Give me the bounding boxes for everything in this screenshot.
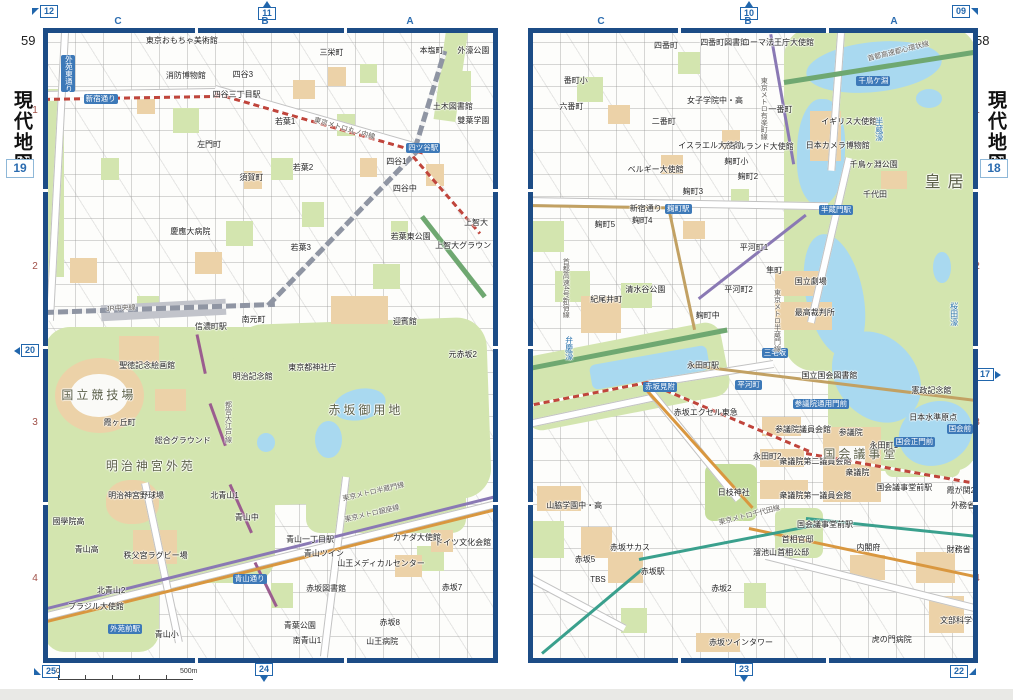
map-label: 赤坂駅 — [641, 568, 665, 577]
nav-marker-09[interactable]: 09 — [952, 5, 978, 18]
map-label: 慶應大病院 — [170, 228, 210, 237]
map-label: 本塩町 — [420, 47, 444, 56]
grid-column-label: B — [255, 16, 275, 27]
map-label: 青山通り — [233, 574, 267, 584]
map-label: 東京メトロ半蔵門線 — [342, 481, 405, 503]
arrow-down-icon — [740, 676, 748, 682]
map-label: 外務省 — [951, 502, 973, 511]
arrow-down-right-icon — [969, 668, 976, 675]
nav-marker-20[interactable]: 20 — [14, 344, 39, 357]
map-label: 若葉2 — [293, 164, 313, 173]
grid-notch — [195, 28, 198, 33]
map-number-right[interactable]: 18 — [980, 159, 1008, 178]
map-label: 赤坂2 — [711, 585, 731, 594]
page-bottom-edge — [0, 689, 1013, 700]
grid-notch — [493, 502, 498, 505]
map-label: 青山高 — [75, 546, 99, 555]
map-label: 青山中 — [235, 514, 259, 523]
map-label: 霞ヶ丘町 — [104, 419, 136, 428]
map-label: 麹町小 — [724, 158, 748, 167]
map-label: 四谷三丁目駅 — [213, 91, 261, 100]
map-label: 永田町駅 — [687, 362, 719, 371]
map-label: 二番町 — [652, 118, 676, 127]
grid-row-label: 3 — [29, 417, 41, 428]
map-label: 首都高速都心環状線 — [867, 40, 930, 63]
map-label: 平河町2 — [724, 286, 752, 295]
map-label: 麹町5 — [595, 221, 615, 230]
map-label: 六番町 — [559, 103, 583, 112]
map-label: 外濠公園 — [457, 47, 489, 56]
scale-zero: 0 — [56, 668, 60, 675]
map-label: 北青山1 — [210, 492, 238, 501]
map-label: 首相官邸 — [782, 536, 814, 545]
map-label: 参議院通用門前 — [793, 399, 850, 409]
map-label: 青葉公園 — [284, 622, 316, 631]
map-label: 財務省 — [947, 546, 971, 555]
map-label: 土木図書館 — [433, 103, 473, 112]
map-label: 麹町中 — [696, 312, 720, 321]
map-label: 新宿通り — [84, 94, 118, 104]
map-label: 山王病院 — [366, 638, 398, 647]
map-label: カナダ大使館 — [393, 534, 441, 543]
map-label: 若葉3 — [291, 244, 311, 253]
map-label: ローマ法王庁大使館 — [742, 39, 814, 48]
map-label: 永田町2 — [753, 453, 781, 462]
grid-notch — [493, 189, 498, 192]
map-label: 半蔵門駅 — [819, 205, 853, 215]
map-label: ドイツ文化会館 — [435, 539, 491, 548]
map-label: 東京メトロ有楽町線 — [760, 77, 768, 140]
grid-notch — [973, 502, 978, 505]
page-number-left: 59 — [21, 33, 35, 48]
map-label: 内閣府 — [856, 544, 880, 553]
scale-max: 500m — [180, 668, 198, 675]
map-label: 紀尾井町 — [590, 296, 622, 305]
map-label: 四谷1 — [386, 158, 406, 167]
map-label: 信濃町駅 — [195, 323, 227, 332]
map-label: 平河町 — [735, 380, 762, 390]
map-label: 東京メトロ半蔵門線 — [773, 289, 781, 352]
map-label: 四番町図書館 — [700, 39, 748, 48]
map-right: 四番町四番町図書館ローマ法王庁大使館番町小六番町二番町女子学院中・高イスラエル大… — [533, 33, 973, 658]
map-label: 山王メディカルセンター — [337, 560, 424, 569]
map-label: 国会議事堂前駅 — [797, 521, 853, 530]
map-label: 首相公邸 — [777, 549, 809, 558]
atlas-spread: 12 11 10 09 20 17 25 24 23 22 C B A C B … — [0, 0, 1013, 700]
nav-marker-12[interactable]: 12 — [32, 5, 58, 18]
grid-notch — [43, 502, 48, 505]
map-label: 日本カメラ博物館 — [806, 142, 870, 151]
map-label: 東京おもちゃ美術館 — [146, 37, 218, 46]
map-label: 一番町 — [768, 106, 792, 115]
nav-marker-17[interactable]: 17 — [976, 368, 1001, 381]
map-label: 千鳥ケ淵 — [856, 76, 890, 86]
map-label: 四番町 — [654, 42, 678, 51]
map-label: 東京メトロ銀座線 — [344, 504, 400, 524]
grid-column-label: B — [738, 16, 758, 27]
map-label: 参議院議員会館 — [775, 426, 831, 435]
map-label: 明治神宮野球場 — [108, 492, 164, 501]
map-label: 東京都神社庁 — [288, 364, 336, 373]
map-labels-left: 東京おもちゃ美術館四谷3消防博物館三栄町本塩町外濠公園四谷三丁目駅新宿通り外苑東… — [48, 33, 493, 658]
map-label: 隼町 — [766, 267, 782, 276]
map-label: アイルランド大使館 — [722, 143, 794, 152]
map-label: 元赤坂2 — [449, 351, 477, 360]
map-label: 赤坂5 — [575, 556, 595, 565]
map-label: 國學院高 — [52, 518, 84, 527]
map-label: 日本水準原点 — [909, 414, 957, 423]
map-left: 東京おもちゃ美術館四谷3消防博物館三栄町本塩町外濠公園四谷三丁目駅新宿通り外苑東… — [48, 33, 493, 658]
nav-marker-23[interactable]: 23 — [735, 663, 753, 682]
grid-row-label: 2 — [29, 261, 41, 272]
map-label: 消防博物館 — [166, 72, 206, 81]
map-label: 日枝神社 — [718, 489, 750, 498]
map-label: 上智大グラウンド — [435, 242, 493, 251]
map-label: 麹町3 — [683, 188, 703, 197]
grid-column-label: C — [108, 16, 128, 27]
map-label: 東京メトロ丸ノ内線 — [313, 117, 376, 142]
map-label: 山脇学園中・高 — [546, 502, 602, 511]
map-label: 千代田 — [863, 191, 887, 200]
grid-notch — [528, 502, 533, 505]
grid-notch — [826, 658, 829, 663]
map-label: 南青山1 — [293, 637, 321, 646]
map-label: 首都高速4号新宿線 — [562, 258, 570, 318]
map-label: 衆議院 — [845, 469, 869, 478]
map-label: 半蔵濠 — [874, 117, 883, 141]
map-label: 新宿通り — [630, 205, 662, 214]
grid-notch — [528, 189, 533, 192]
map-label: 明治神宮外苑 — [106, 460, 196, 473]
map-number-left[interactable]: 19 — [6, 159, 34, 178]
map-label: 秩父宮ラグビー場 — [124, 552, 188, 561]
map-label: 赤坂ツインタワー — [709, 639, 773, 648]
map-label: 赤坂8 — [380, 619, 400, 628]
map-label: 国会議事堂前駅 — [876, 484, 932, 493]
map-label: ベルギー大使館 — [628, 166, 684, 175]
map-label: 左門町 — [197, 141, 221, 150]
map-label: 青山一丁目駅 — [286, 536, 334, 545]
arrow-down-icon — [260, 676, 268, 682]
map-label: 東京メトロ千代田線 — [718, 505, 781, 528]
map-label: 霞が関2 — [947, 487, 973, 496]
map-label: 国会正門前 — [894, 437, 936, 447]
map-label: 北青山2 — [97, 587, 125, 596]
map-label: 四ツ谷駅 — [406, 143, 440, 153]
grid-column-label: A — [400, 16, 420, 27]
map-label: 迎賓館 — [393, 318, 417, 327]
map-label: 麹町駅 — [665, 204, 692, 214]
map-label: 若葉東公園 — [391, 233, 431, 242]
grid-notch — [344, 658, 347, 663]
map-labels-right: 四番町四番町図書館ローマ法王庁大使館番町小六番町二番町女子学院中・高イスラエル大… — [533, 33, 973, 658]
map-label: 若葉1 — [275, 118, 295, 127]
grid-notch — [43, 346, 48, 349]
map-label: 都営大江戸線 — [224, 401, 232, 443]
map-label: 文部科学省 — [940, 617, 973, 626]
arrow-left-icon — [14, 347, 20, 355]
map-label: 国立国会図書館 — [801, 372, 857, 381]
grid-notch — [195, 658, 198, 663]
map-label: 総合グラウンド — [155, 437, 211, 446]
map-panel-left[interactable]: 東京おもちゃ美術館四谷3消防博物館三栄町本塩町外濠公園四谷三丁目駅新宿通り外苑東… — [43, 28, 498, 663]
map-label: 清水谷公園 — [625, 286, 665, 295]
arrow-up-left-icon — [32, 8, 39, 15]
map-label: 千鳥ヶ淵公園 — [850, 161, 898, 170]
map-label: 国会前 — [947, 424, 973, 434]
map-label: 国立劇場 — [795, 278, 827, 287]
map-label: 麹町4 — [632, 217, 652, 226]
map-label: 赤坂図書館 — [306, 585, 346, 594]
scale-bar — [58, 675, 193, 680]
map-label: 外苑東通り — [61, 55, 75, 93]
arrow-right-icon — [995, 371, 1001, 379]
grid-column-label: A — [884, 16, 904, 27]
grid-notch — [344, 28, 347, 33]
map-label: 赤坂見附 — [643, 382, 677, 392]
map-label: 赤坂7 — [442, 584, 462, 593]
map-label: 青山小 — [155, 631, 179, 640]
map-label: 四谷中 — [393, 185, 417, 194]
map-label: 参議院 — [839, 429, 863, 438]
map-label: 国立競技場 — [61, 389, 136, 402]
map-label: 麹町2 — [738, 173, 758, 182]
map-label: JR中央線 — [106, 304, 136, 313]
grid-notch — [678, 658, 681, 663]
nav-marker-22[interactable]: 22 — [950, 665, 976, 678]
grid-notch — [43, 189, 48, 192]
map-label: 赤坂エクセル東急 — [674, 409, 738, 418]
map-label: 赤坂御用地 — [328, 404, 403, 417]
map-label: 桜田濠 — [949, 302, 958, 326]
map-label: 南元町 — [242, 316, 266, 325]
map-label: 女子学院中・高 — [687, 97, 743, 106]
map-label: 須賀町 — [239, 174, 263, 183]
grid-notch — [826, 28, 829, 33]
map-label: 外苑前駅 — [108, 624, 142, 634]
map-panel-right[interactable]: 四番町四番町図書館ローマ法王庁大使館番町小六番町二番町女子学院中・高イスラエル大… — [528, 28, 978, 663]
grid-notch — [528, 346, 533, 349]
map-label: 憲政記念館 — [911, 387, 951, 396]
map-label: 衆議院第一議員会館 — [779, 492, 851, 501]
map-label: 雙葉学園 — [457, 117, 489, 126]
grid-notch — [973, 346, 978, 349]
map-label: ブラジル大使館 — [68, 603, 124, 612]
arrow-down-left-icon — [34, 668, 41, 675]
map-label: 最高裁判所 — [795, 309, 835, 318]
map-label: 青山ツイン — [304, 550, 344, 559]
grid-notch — [973, 189, 978, 192]
map-label: 明治記念館 — [233, 373, 273, 382]
map-label: 上智大 — [464, 219, 488, 228]
grid-notch — [678, 28, 681, 33]
arrow-up-right-icon — [971, 8, 978, 15]
map-label: 三栄町 — [319, 49, 343, 58]
map-label: イギリス大使館 — [821, 118, 877, 127]
map-label: 番町小 — [564, 77, 588, 86]
map-label: 虎の門病院 — [872, 636, 912, 645]
grid-notch — [493, 346, 498, 349]
map-label: TBS — [590, 576, 606, 585]
grid-column-label: C — [591, 16, 611, 27]
map-label: 皇居 — [925, 174, 971, 192]
map-label: 弁慶濠 — [564, 336, 573, 360]
grid-row-label: 4 — [29, 573, 41, 584]
nav-marker-24[interactable]: 24 — [255, 663, 273, 682]
map-label: 赤坂サカス — [610, 544, 650, 553]
map-label: 平河町1 — [740, 244, 768, 253]
map-label: 聖徳記念絵画館 — [119, 362, 175, 371]
map-label: 四谷3 — [233, 71, 253, 80]
